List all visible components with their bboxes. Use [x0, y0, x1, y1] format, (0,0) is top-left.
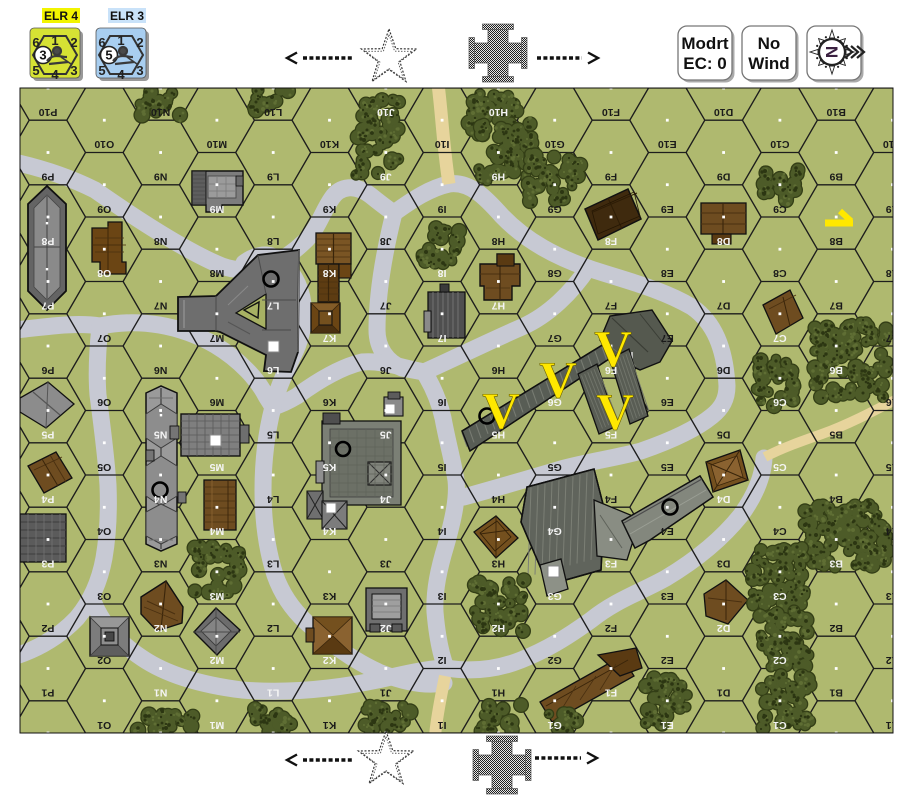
svg-text:3: 3 [39, 48, 46, 63]
svg-text:L4: L4 [267, 493, 279, 505]
svg-text:D6: D6 [717, 364, 731, 376]
svg-text:D10: D10 [714, 106, 733, 118]
svg-text:E10: E10 [658, 138, 677, 150]
svg-text:O2: O2 [97, 654, 111, 666]
svg-text:N8: N8 [154, 235, 168, 247]
svg-text:L1: L1 [267, 687, 279, 699]
svg-text:J8: J8 [380, 235, 392, 247]
svg-text:ELR 3: ELR 3 [110, 9, 144, 23]
svg-text:C9: C9 [773, 203, 787, 215]
svg-text:E6: E6 [661, 396, 674, 408]
svg-text:D8: D8 [717, 235, 731, 247]
svg-text:N3: N3 [154, 558, 168, 570]
svg-text:F2: F2 [605, 622, 617, 634]
svg-text:L9: L9 [267, 171, 279, 183]
svg-text:M7: M7 [209, 332, 224, 344]
svg-text:K5: K5 [323, 461, 337, 473]
svg-text:J2: J2 [380, 622, 392, 634]
svg-text:5: 5 [32, 63, 39, 78]
svg-text:N1: N1 [154, 687, 168, 699]
svg-text:P6: P6 [41, 364, 54, 376]
svg-text:Modrt: Modrt [681, 34, 729, 53]
svg-text:H8: H8 [492, 235, 506, 247]
svg-text:3: 3 [70, 63, 77, 78]
svg-text:C10: C10 [770, 138, 789, 150]
svg-text:J1: J1 [380, 687, 392, 699]
svg-text:V: V [596, 384, 634, 441]
svg-text:H1: H1 [492, 687, 506, 699]
svg-text:L10: L10 [264, 106, 282, 118]
svg-text:D4: D4 [717, 493, 731, 505]
svg-text:N: N [822, 46, 841, 58]
svg-text:H10: H10 [489, 106, 508, 118]
svg-text:ELR 4: ELR 4 [44, 9, 78, 23]
svg-text:B8: B8 [829, 235, 843, 247]
svg-text:G5: G5 [548, 461, 562, 473]
svg-text:B5: B5 [829, 429, 843, 441]
svg-text:K10: K10 [320, 138, 339, 150]
svg-text:O10: O10 [94, 138, 114, 150]
svg-text:4: 4 [117, 67, 125, 82]
svg-text:I8: I8 [438, 267, 447, 279]
svg-text:F8: F8 [605, 235, 617, 247]
svg-text:B2: B2 [829, 622, 843, 634]
svg-text:V: V [594, 321, 632, 378]
svg-text:I6: I6 [438, 396, 447, 408]
svg-text:G9: G9 [548, 203, 562, 215]
svg-text:L8: L8 [267, 235, 279, 247]
svg-text:M10: M10 [207, 138, 228, 150]
svg-text:EC: 0: EC: 0 [683, 54, 726, 73]
svg-text:B3: B3 [829, 558, 843, 570]
svg-text:K2: K2 [323, 654, 337, 666]
svg-text:I9: I9 [438, 203, 447, 215]
svg-text:H4: H4 [492, 493, 506, 505]
svg-text:E5: E5 [661, 461, 674, 473]
svg-text:Wind: Wind [748, 54, 789, 73]
svg-text:O9: O9 [97, 203, 111, 215]
svg-text:D7: D7 [717, 300, 731, 312]
svg-text:K3: K3 [323, 590, 337, 602]
svg-text:G8: G8 [548, 267, 562, 279]
svg-text:O6: O6 [97, 396, 111, 408]
svg-text:G4: G4 [548, 525, 562, 537]
svg-text:O1: O1 [97, 719, 111, 731]
svg-text:N5: N5 [154, 429, 168, 441]
svg-text:I3: I3 [438, 590, 447, 602]
svg-text:M8: M8 [209, 267, 224, 279]
svg-text:C5: C5 [773, 461, 787, 473]
svg-text:P2: P2 [41, 622, 54, 634]
svg-text:P5: P5 [41, 429, 54, 441]
svg-text:J3: J3 [380, 558, 392, 570]
svg-text:O4: O4 [97, 525, 111, 537]
svg-text:E2: E2 [661, 654, 674, 666]
svg-text:E1: E1 [661, 719, 674, 731]
svg-text:J6: J6 [380, 364, 392, 376]
svg-text:L7: L7 [267, 300, 279, 312]
svg-text:P4: P4 [41, 493, 54, 505]
svg-text:P1: P1 [41, 687, 54, 699]
svg-text:F7: F7 [605, 300, 617, 312]
svg-text:O3: O3 [97, 590, 111, 602]
svg-text:V: V [482, 383, 520, 440]
svg-text:L2: L2 [267, 622, 279, 634]
svg-text:C1: C1 [773, 719, 787, 731]
svg-text:H2: H2 [492, 622, 506, 634]
svg-text:M1: M1 [209, 719, 224, 731]
svg-text:O8: O8 [97, 267, 111, 279]
svg-text:M3: M3 [209, 590, 224, 602]
svg-text:5: 5 [105, 48, 112, 63]
svg-text:C3: C3 [773, 590, 787, 602]
svg-text:I2: I2 [438, 654, 447, 666]
svg-text:J7: J7 [380, 300, 392, 312]
svg-text:H6: H6 [492, 364, 506, 376]
svg-text:C8: C8 [773, 267, 787, 279]
svg-text:M5: M5 [209, 461, 224, 473]
svg-text:G2: G2 [548, 654, 562, 666]
svg-text:K4: K4 [323, 525, 337, 537]
svg-text:K8: K8 [323, 267, 337, 279]
svg-text:B10: B10 [826, 106, 845, 118]
svg-text:K1: K1 [323, 719, 337, 731]
svg-text:2: 2 [136, 35, 143, 50]
svg-text:I7: I7 [438, 332, 447, 344]
svg-text:O5: O5 [97, 461, 111, 473]
svg-text:N10: N10 [151, 106, 170, 118]
svg-text:G3: G3 [548, 590, 562, 602]
svg-text:1: 1 [51, 33, 58, 48]
svg-text:M2: M2 [209, 654, 224, 666]
svg-text:P3: P3 [41, 558, 54, 570]
svg-text:F4: F4 [605, 493, 617, 505]
svg-text:H9: H9 [492, 171, 506, 183]
svg-text:I5: I5 [438, 461, 447, 473]
svg-text:G10: G10 [545, 138, 565, 150]
svg-text:H3: H3 [492, 558, 506, 570]
svg-text:G7: G7 [548, 332, 562, 344]
svg-text:M6: M6 [209, 396, 224, 408]
svg-text:No: No [758, 34, 781, 53]
svg-text:I4: I4 [438, 525, 447, 537]
svg-text:C4: C4 [773, 525, 787, 537]
svg-text:F1: F1 [605, 687, 617, 699]
svg-text:5: 5 [98, 63, 105, 78]
svg-text:O7: O7 [97, 332, 111, 344]
svg-text:N9: N9 [154, 171, 168, 183]
svg-text:K9: K9 [323, 203, 337, 215]
svg-text:B4: B4 [829, 493, 843, 505]
svg-text:N6: N6 [154, 364, 168, 376]
svg-text:P7: P7 [41, 300, 54, 312]
svg-text:E4: E4 [661, 525, 674, 537]
svg-text:1: 1 [117, 33, 124, 48]
svg-text:P9: P9 [41, 171, 54, 183]
svg-text:I1: I1 [438, 719, 447, 731]
svg-text:J9: J9 [380, 171, 392, 183]
svg-text:F3: F3 [605, 558, 617, 570]
svg-text:E8: E8 [661, 267, 674, 279]
svg-text:K7: K7 [323, 332, 337, 344]
svg-text:3: 3 [136, 63, 143, 78]
svg-text:L6: L6 [267, 364, 279, 376]
svg-text:N7: N7 [154, 300, 168, 312]
svg-text:2: 2 [70, 35, 77, 50]
svg-text:C6: C6 [773, 396, 787, 408]
svg-text:P8: P8 [41, 235, 54, 247]
svg-text:V: V [539, 352, 577, 409]
svg-text:D2: D2 [717, 622, 731, 634]
svg-text:B1: B1 [829, 687, 843, 699]
svg-text:D9: D9 [717, 171, 731, 183]
svg-text:C7: C7 [773, 332, 787, 344]
svg-text:B6: B6 [829, 364, 843, 376]
svg-text:B9: B9 [829, 171, 843, 183]
svg-text:C2: C2 [773, 654, 787, 666]
svg-text:F9: F9 [605, 171, 617, 183]
svg-text:E7: E7 [661, 332, 674, 344]
svg-text:I10: I10 [435, 138, 450, 150]
svg-text:D5: D5 [717, 429, 731, 441]
svg-text:E9: E9 [661, 203, 674, 215]
svg-text:J5: J5 [380, 429, 392, 441]
svg-text:P10: P10 [39, 106, 58, 118]
svg-text:J4: J4 [380, 493, 392, 505]
svg-text:J10: J10 [377, 106, 395, 118]
svg-text:N4: N4 [154, 493, 168, 505]
svg-text:L3: L3 [267, 558, 279, 570]
svg-text:H7: H7 [492, 300, 506, 312]
svg-text:D1: D1 [717, 687, 731, 699]
svg-text:L5: L5 [267, 429, 279, 441]
svg-text:M4: M4 [209, 525, 224, 537]
svg-text:E3: E3 [661, 590, 674, 602]
svg-text:B7: B7 [829, 300, 843, 312]
svg-text:F10: F10 [602, 106, 620, 118]
svg-text:4: 4 [51, 67, 59, 82]
svg-text:G1: G1 [548, 719, 562, 731]
svg-text:M9: M9 [209, 203, 224, 215]
svg-text:K6: K6 [323, 396, 337, 408]
svg-text:D3: D3 [717, 558, 731, 570]
svg-text:N2: N2 [154, 622, 168, 634]
